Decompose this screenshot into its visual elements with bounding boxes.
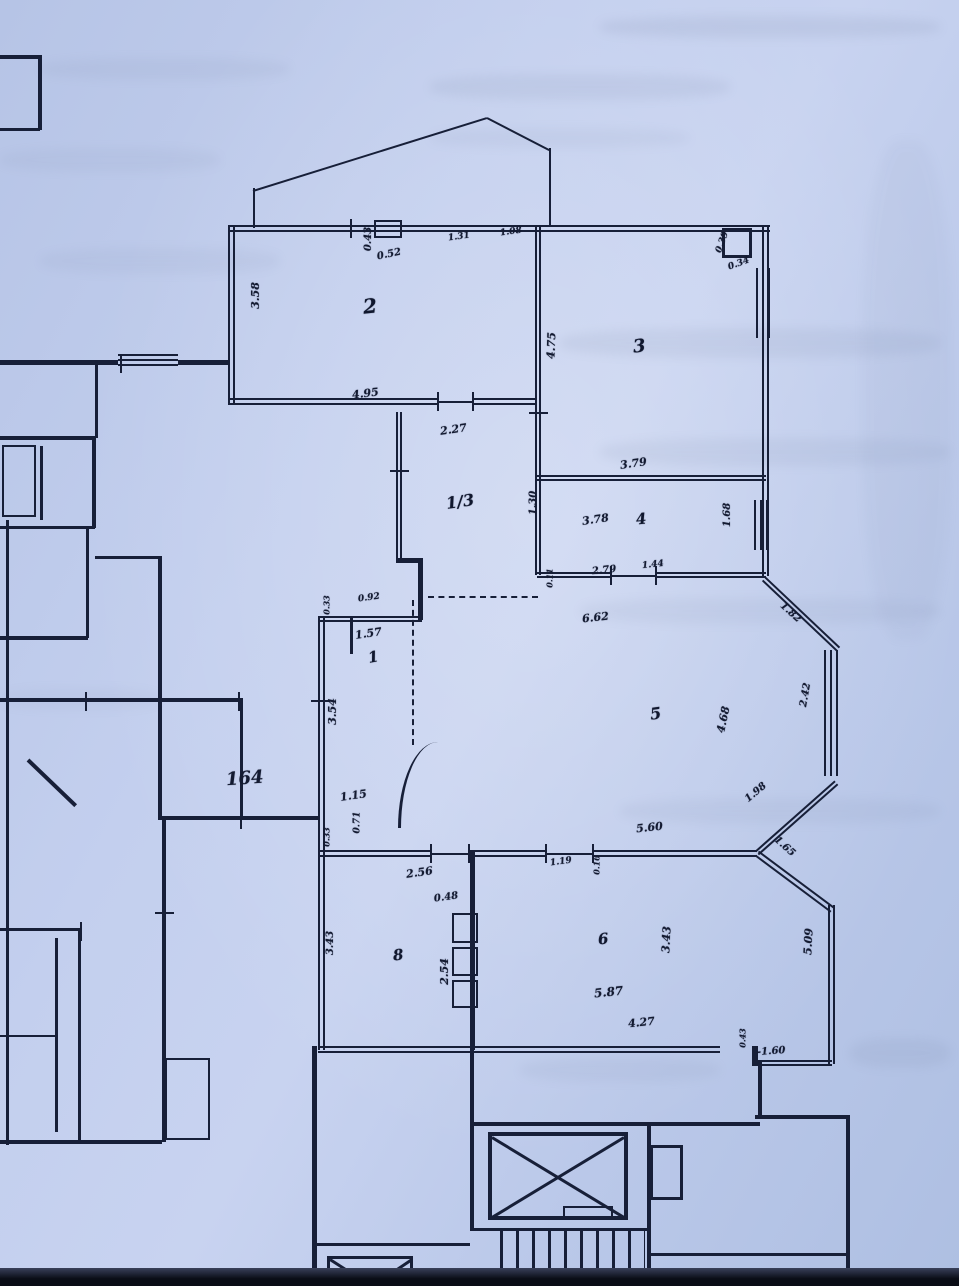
dimension-label: 3.58: [250, 282, 261, 309]
dimension-label: 5.87: [593, 985, 623, 1000]
core-wall: [755, 1115, 850, 1119]
dimension-label: 0.11: [546, 568, 554, 587]
dimension-label: 0.33: [323, 595, 331, 614]
neighbor-wall: [55, 938, 58, 1132]
dimension-label: 1.57: [354, 626, 382, 641]
dimension-label: 2.27: [439, 422, 467, 437]
tick-mark: [120, 354, 122, 373]
balcony-line: [253, 117, 488, 192]
window-box: [374, 220, 402, 238]
bleed-through-smudge: [40, 58, 290, 80]
photo-edge-shadow: [0, 1268, 959, 1286]
dimension-label: 0.34: [727, 257, 751, 273]
bleed-through-smudge: [520, 1058, 720, 1082]
bleed-through-smudge: [620, 798, 940, 824]
dimension-label: 0.92: [357, 593, 380, 605]
window-bay: [824, 650, 842, 776]
dashed-line: [412, 600, 414, 745]
wall-room5-bottom: [318, 850, 430, 857]
balcony-line: [253, 188, 255, 228]
outer-wall-diagonal: [755, 851, 834, 913]
dimension-label: 0.43: [364, 227, 374, 251]
dimension-label: 3.79: [619, 456, 647, 471]
vent-shaft: [452, 913, 478, 943]
wall-room2-bottom: [228, 398, 437, 405]
core-wall: [470, 1046, 474, 1230]
dimension-label: 1.15: [339, 788, 367, 803]
outer-wall-right-room6: [828, 905, 835, 1064]
dimension-label: 3.54: [327, 698, 338, 725]
window: [118, 354, 178, 366]
wall-rooms2-3: [535, 225, 541, 575]
neighbor-wall: [178, 360, 228, 365]
dimension-label: 1.31: [447, 232, 470, 244]
tick-mark: [350, 219, 352, 238]
dimension-label: 2.56: [405, 865, 433, 880]
outer-wall-bottom-step: [752, 1060, 832, 1066]
outer-wall-left-room2: [228, 225, 235, 403]
neighbor-wall: [158, 556, 162, 818]
dimension-label: 6.62: [581, 611, 609, 625]
dashed-line: [428, 596, 538, 598]
neighbor-wall: [78, 928, 81, 1142]
dimension-label: 3.43: [326, 931, 336, 955]
dimension-label: 4.27: [627, 1016, 655, 1030]
door-sill: [430, 853, 468, 855]
window: [436, 222, 508, 232]
neighbor-wall: [95, 360, 98, 438]
balcony-line: [549, 148, 551, 226]
core-wall: [312, 1243, 470, 1246]
room-number: 4: [635, 510, 647, 529]
tick-mark: [437, 392, 439, 411]
door-sill: [437, 401, 472, 403]
dimension-label: 0.16: [593, 855, 601, 874]
dimension-label: 1.44: [642, 560, 665, 571]
neighbor-wall: [92, 436, 96, 528]
dimension-label: 1.68: [723, 503, 733, 527]
bleed-through-smudge: [600, 16, 940, 38]
dimension-label: 0.48: [433, 891, 459, 904]
neighbor-wall: [0, 636, 88, 640]
bleed-through-smudge: [862, 140, 952, 640]
room-number: 5: [649, 703, 663, 723]
core-wall: [470, 1122, 760, 1126]
tick-mark: [80, 922, 82, 941]
wall-room5-bottom: [592, 850, 757, 857]
dimension-label: 0.33: [323, 827, 331, 846]
dimension-label: 3.43: [660, 926, 672, 953]
bleed-through-smudge: [430, 74, 730, 100]
tick-mark: [529, 412, 548, 414]
core-room: [650, 1145, 683, 1200]
tick-mark: [155, 912, 174, 914]
core-wall: [647, 1253, 847, 1256]
dimension-label: 1.65: [772, 835, 797, 859]
dimension-label: 3.78: [581, 512, 609, 527]
neighbor-wall: [158, 816, 318, 820]
core-wall: [846, 1115, 850, 1286]
dimension-label: 1.30: [529, 491, 539, 515]
neighbor-wall: [86, 526, 89, 638]
bleed-through-smudge: [40, 248, 280, 274]
room-number: 1/3: [445, 490, 475, 513]
wall-room4-bottom: [655, 572, 766, 578]
door-sill: [545, 853, 592, 855]
neighbor-wall: [0, 928, 80, 931]
tick-mark: [238, 692, 240, 711]
dimension-label: 164: [225, 769, 264, 790]
neighbor-wall: [0, 55, 40, 59]
dimension-label: 1.08: [499, 227, 522, 239]
dimension-label: 4.95: [351, 386, 379, 400]
outer-wall-bottom: [318, 1046, 720, 1053]
tick-mark: [545, 844, 547, 863]
door-arc: [398, 742, 438, 828]
neighbor-wall: [0, 698, 240, 702]
neighbor-wall: [0, 128, 40, 131]
wall-step: [418, 558, 423, 620]
door-jamb: [350, 616, 353, 654]
neighbor-wall: [0, 1140, 162, 1144]
neighbor-wall: [0, 360, 118, 365]
window: [756, 268, 772, 338]
room-number: 6: [597, 930, 609, 949]
dimension-label: 2.42: [799, 682, 813, 708]
dimension-label: 0.43: [739, 1028, 747, 1047]
neighbor-wall: [0, 526, 95, 529]
bleed-through-smudge: [430, 128, 690, 148]
dimension-label: 5.09: [802, 928, 814, 955]
neighbor-wall: [38, 55, 42, 130]
outer-wall-right-room3: [762, 225, 769, 480]
neighbor-room: [2, 445, 36, 517]
room-number: 2: [362, 293, 378, 318]
window: [754, 500, 770, 550]
dimension-label: 4.75: [545, 332, 557, 359]
neighbor-wall: [95, 556, 158, 559]
vent-shaft: [452, 980, 478, 1008]
dimension-label: 2.54: [439, 958, 450, 985]
room-number: 3: [632, 335, 647, 357]
floor-plan: 231/3415680.430.521.311.083.584.952.274.…: [0, 0, 959, 1286]
wall-room2-bottom: [472, 398, 537, 405]
dimension-label: 1.19: [549, 857, 572, 869]
tick-mark: [85, 692, 87, 711]
neighbor-room: [165, 1058, 210, 1140]
core-wall: [312, 1046, 317, 1286]
tick-mark: [240, 810, 242, 829]
tick-mark: [472, 392, 474, 411]
tick-mark: [468, 844, 470, 863]
wall-room5-bottom: [468, 850, 545, 857]
bleed-through-smudge: [0, 148, 220, 172]
neighbor-wall-diagonal: [27, 759, 78, 808]
elevator-detail: [563, 1206, 613, 1219]
dimension-label: -1.60: [757, 1046, 786, 1058]
dimension-label: 4.68: [715, 705, 731, 733]
dimension-label: 0.52: [376, 248, 402, 263]
core-wall: [758, 1060, 762, 1118]
neighbor-wall: [40, 446, 43, 520]
neighbor-wall: [240, 698, 243, 818]
dimension-label: 0.71: [353, 812, 362, 834]
dimension-label: 5.60: [635, 821, 663, 835]
vent-shaft: [452, 947, 478, 976]
door-sill: [610, 575, 655, 577]
bleed-through-smudge: [850, 1038, 950, 1068]
room-number: 8: [392, 946, 404, 965]
room-number: 1: [367, 647, 380, 667]
tick-mark: [430, 844, 432, 863]
wall-room1-top: [318, 616, 422, 622]
wall-corridor-left: [396, 412, 402, 562]
tick-mark: [390, 470, 409, 472]
wall-rooms3-4: [537, 475, 766, 481]
neighbor-wall: [6, 520, 9, 1145]
neighbor-wall: [0, 436, 95, 440]
